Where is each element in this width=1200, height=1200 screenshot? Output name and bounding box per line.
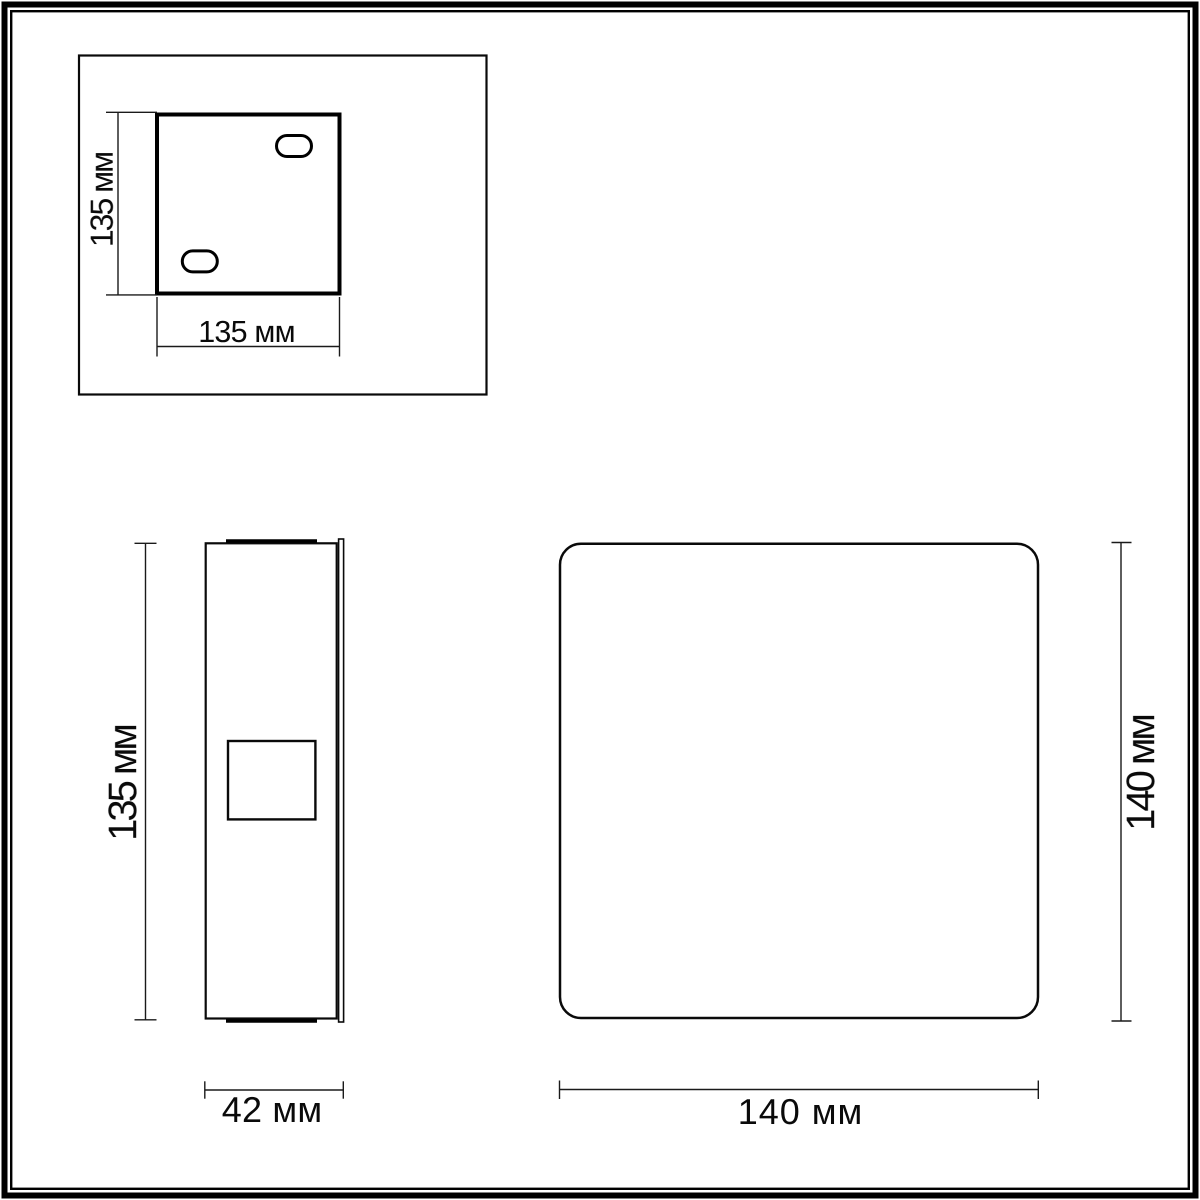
svg-text:42 мм: 42 мм [222, 1089, 323, 1130]
svg-text:135 мм: 135 мм [84, 153, 120, 247]
svg-text:135 мм: 135 мм [198, 315, 295, 349]
svg-text:140 мм: 140 мм [1119, 716, 1163, 831]
svg-text:135 мм: 135 мм [101, 726, 145, 841]
svg-text:140 мм: 140 мм [738, 1091, 864, 1132]
